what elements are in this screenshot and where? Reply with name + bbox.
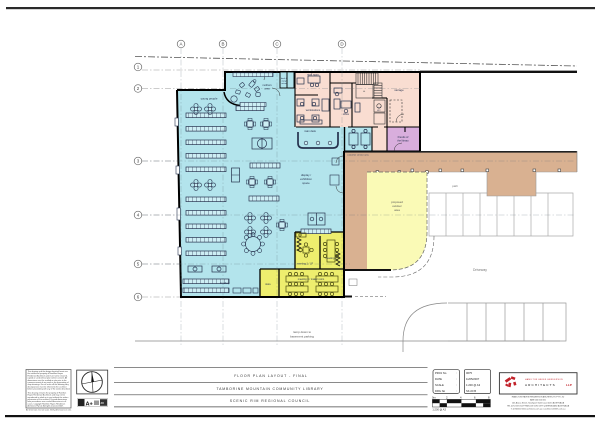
svg-text:1:200 @ A3: 1:200 @ A3 — [432, 407, 446, 411]
svg-text:return: return — [281, 82, 286, 85]
svg-text:TEL (07) 5591 6477 FAX (07) 5: TEL (07) 5591 6477 FAX (07) 5591 6377 QU… — [507, 405, 570, 408]
svg-text:meeting 3 / maker room: meeting 3 / maker room — [298, 278, 324, 281]
svg-text:Architects Pty Ltd. All rights: Architects Pty Ltd. All rights reserved … — [28, 405, 65, 408]
svg-text:staff room: staff room — [307, 73, 318, 77]
svg-text:145 Avoca Street, Southport G: 145 Avoca Street, Southport Gold Coast 4… — [512, 402, 565, 405]
svg-text:main desk: main desk — [304, 129, 317, 133]
svg-text:the library: the library — [397, 139, 409, 143]
svg-text:workstations: workstations — [306, 108, 321, 112]
svg-text:11/05/2007: 11/05/2007 — [466, 377, 480, 381]
svg-text:ABN 000 000 000: ABN 000 000 000 — [530, 398, 547, 401]
svg-text:SCENIC RIM REGIONAL COUNCIL: SCENIC RIM REGIONAL COUNCIL — [230, 399, 311, 403]
svg-text:mothers: mothers — [262, 83, 272, 87]
svg-text:friends of: friends of — [398, 135, 409, 139]
svg-text:HAMILTON HAYES HENDERSON: HAMILTON HAYES HENDERSON — [525, 378, 563, 381]
svg-text:Driveway: Driveway — [473, 268, 487, 272]
svg-text:A3 sheet size. Do not scale. V: A3 sheet size. Do not scale. Verify dime… — [26, 409, 72, 412]
svg-text:FLOOR PLAN LAYOUT - FINAL: FLOOR PLAN LAYOUT - FINAL — [234, 374, 308, 378]
svg-text:TAMBORINE MOUNTAIN COMMUNITY L: TAMBORINE MOUNTAIN COMMUNITY LIBRARY — [216, 387, 323, 391]
svg-text:basement parking: basement parking — [290, 335, 314, 339]
svg-text:SK-00 B: SK-00 B — [466, 389, 476, 393]
svg-text:ramp down to: ramp down to — [293, 330, 312, 334]
svg-text:DRG No: DRG No — [435, 389, 446, 393]
svg-text:0675: 0675 — [466, 371, 472, 375]
svg-text:LLP: LLP — [566, 383, 572, 387]
svg-text:SCALE: SCALE — [435, 383, 444, 387]
svg-text:office: office — [343, 112, 350, 116]
svg-text:before proceeding with any of: before proceeding with any of the works … — [28, 388, 71, 391]
svg-text:A+: A+ — [86, 401, 94, 407]
svg-text:path: path — [452, 184, 458, 188]
svg-text:T. (07)5555 5555 archit: T. (07)5555 5555 architects.com.au e.arc… — [511, 408, 566, 411]
svg-text:meeting 2: meeting 2 — [326, 257, 338, 260]
svg-text:store: store — [265, 283, 271, 286]
svg-text:customer service area: customer service area — [347, 154, 369, 157]
svg-text:WC: WC — [377, 110, 381, 112]
svg-text:DATE: DATE — [435, 377, 442, 381]
svg-text:HAMILTON HAYES HENDERSON ARCHI: HAMILTON HAYES HENDERSON ARCHITECTS PTY … — [512, 395, 565, 398]
svg-text:space: space — [302, 181, 310, 185]
svg-text:it gallery: it gallery — [220, 282, 230, 285]
svg-text:A: A — [179, 42, 182, 47]
svg-text:young people: young people — [201, 97, 218, 101]
svg-text:PROJ No: PROJ No — [435, 371, 447, 375]
svg-text:staff: staff — [377, 106, 381, 109]
svg-text:ARCHITECTS: ARCHITECTS — [525, 383, 556, 387]
svg-text:B: B — [221, 42, 224, 47]
svg-text:1:200 @ A3: 1:200 @ A3 — [466, 383, 481, 387]
svg-text:##: ## — [101, 401, 105, 405]
svg-text:area: area — [394, 208, 400, 212]
